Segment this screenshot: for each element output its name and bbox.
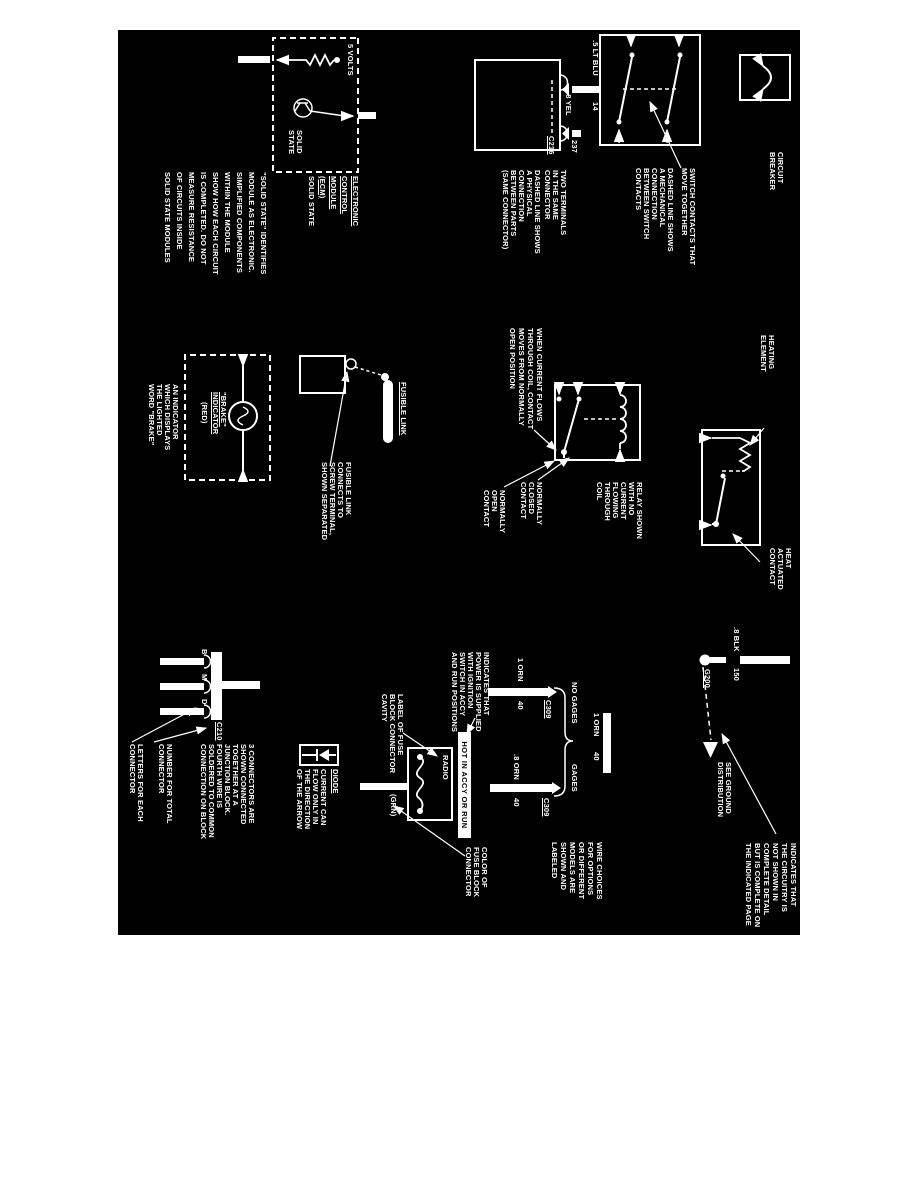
switch-symbol bbox=[600, 35, 700, 168]
wire-circuit-14: 14 bbox=[591, 102, 599, 111]
switch-note-dashed: DASHED LINE SHOWS A MECHANICAL CONNECTIO… bbox=[634, 168, 674, 252]
ground-note: INDICATES THAT THE CIRCUITRY IS NOT SHOW… bbox=[744, 843, 798, 927]
connector-id-c216: C216 bbox=[547, 136, 555, 155]
fuse-note-cavity: LABEL OF FUSE BLOCK CONNECTOR CAVITY bbox=[380, 694, 404, 773]
ground-id-g200: G200 bbox=[703, 669, 711, 688]
see-ground-label: SEE GROUND DISTRIBUTION bbox=[716, 762, 732, 817]
heat-contact-label: HEAT ACTUATED CONTACT bbox=[768, 548, 792, 590]
brake-bulb-label: "BRAKE" INDICATOR bbox=[211, 392, 227, 434]
wire-choices-note: WIRE CHOICES FOR OPTIONS OR DIFFERENT MO… bbox=[550, 842, 604, 900]
ground-symbol bbox=[700, 655, 791, 835]
trunk-wire-color: 1 ORN bbox=[592, 713, 600, 737]
circuit-breaker-label: CIRCUIT BREAKER bbox=[768, 152, 784, 190]
diode-symbol bbox=[300, 745, 338, 765]
wire-label-yel: .8 YEL bbox=[564, 92, 572, 116]
junction-letter-1: B bbox=[200, 649, 208, 655]
trunk-wire-circuit: 40 bbox=[592, 752, 600, 761]
option-gages: GAGES bbox=[570, 764, 578, 792]
connector-symbol bbox=[475, 60, 600, 150]
wire-label-blk: .8 BLK bbox=[732, 627, 740, 652]
ecm-state-label: SOLID STATE bbox=[287, 130, 303, 154]
switch-note-contacts: SWITCH CONTACTS THAT MOVE TOGETHER bbox=[680, 168, 696, 265]
ecm-module-symbol bbox=[238, 38, 376, 172]
relay-nc-label: NORMALLY CLOSED CONTACT bbox=[519, 482, 543, 525]
wire-circuit-150: 150 bbox=[732, 668, 740, 681]
junction-note-main: 3 CONNECTORS ARE SHOWN CONNECTED TOGETHE… bbox=[199, 744, 255, 839]
junction-note-number: NUMBER FOR TOTAL CONNECTOR bbox=[157, 744, 173, 824]
ecm-volts-label: 5 VOLTS bbox=[346, 44, 354, 76]
diode-title: DIODE bbox=[331, 769, 339, 794]
junction-letter-2: M bbox=[200, 674, 208, 680]
heat-contact-symbol bbox=[702, 428, 764, 562]
relay-no-label: NORMALLY OPEN CONTACT bbox=[482, 490, 506, 533]
wire-circuit-237: 237 bbox=[570, 140, 578, 153]
fusible-link-note: FUSIBLE LINK CONNECTS TO SCREW TERMINAL,… bbox=[320, 462, 352, 540]
circuit-breaker-icon bbox=[740, 55, 790, 100]
fuse-connector-color: (GRN) bbox=[389, 794, 397, 816]
left-connector-c309: C309 bbox=[544, 700, 552, 719]
connector-note-dashed: DASHED LINE SHOWS A PHYSICAL CONNECTION … bbox=[501, 170, 541, 254]
junction-connector-c210: C210 bbox=[215, 722, 223, 741]
brake-note: AN INDICATOR WHICH DISPLAYS THE LIGHTED … bbox=[147, 384, 179, 450]
hot-in-accy-label: HOT IN ACCY OR RUN bbox=[458, 732, 471, 838]
fuse-name-radio: RADIO bbox=[441, 755, 449, 780]
fuse-note-power: INDICATES THAT POWER IS SUPPLIED WITH IG… bbox=[450, 652, 490, 732]
relay-note-action: WHEN CURRENT FLOWS THROUGH COIL, CONTACT… bbox=[508, 328, 544, 429]
right-wire-circuit: 40 bbox=[512, 798, 520, 807]
fuse-note-color: COLOR OF FUSE BLOCK CONNECTOR bbox=[464, 847, 488, 897]
junction-note-letters: LETTERS FOR EACH CONNECTOR bbox=[128, 744, 144, 822]
diagram-legend-panel: CIRCUIT BREAKER SWITCH CONTACTS THAT MOV… bbox=[118, 30, 800, 935]
left-wire-color: 1 ORN bbox=[516, 658, 524, 682]
junction-letter-3: D bbox=[200, 699, 208, 705]
brake-bulb-color: (RED) bbox=[200, 402, 208, 424]
ecm-note: "SOLID STATE" IDENTIFIES MODULE AS ELECT… bbox=[161, 172, 269, 275]
left-wire-circuit: 40 bbox=[516, 701, 524, 710]
ecm-title: ELECTRONIC CONTROL MODULE (ECM) bbox=[317, 176, 361, 226]
option-no-gages: NO GAGES bbox=[570, 682, 578, 724]
relay-note-main: RELAY SHOWN WITH NO CURRENT FLOWING THRO… bbox=[595, 482, 643, 539]
right-connector-c309: C309 bbox=[542, 798, 550, 817]
wire-label-ltblu: .5 LT BLU bbox=[591, 40, 599, 76]
fusible-link-title: FUSIBLE LINK bbox=[399, 382, 407, 435]
junction-block-symbol bbox=[132, 652, 260, 742]
ecm-title-rest: SOLID STATE bbox=[306, 176, 317, 226]
diode-note: CURRENT CAN FLOW ONLY IN THE DIRECTION O… bbox=[295, 769, 327, 829]
connector-note-terminals: TWO TERMINALS IN THE SAME CONNECTOR bbox=[543, 170, 567, 235]
fusible-link-symbol bbox=[300, 356, 389, 466]
heating-element-label: HEATING ELEMENT bbox=[759, 335, 775, 372]
scanned-manual-page: CIRCUIT BREAKER SWITCH CONTACTS THAT MOV… bbox=[0, 0, 918, 1188]
right-wire-color: .8 ORN bbox=[512, 754, 520, 780]
